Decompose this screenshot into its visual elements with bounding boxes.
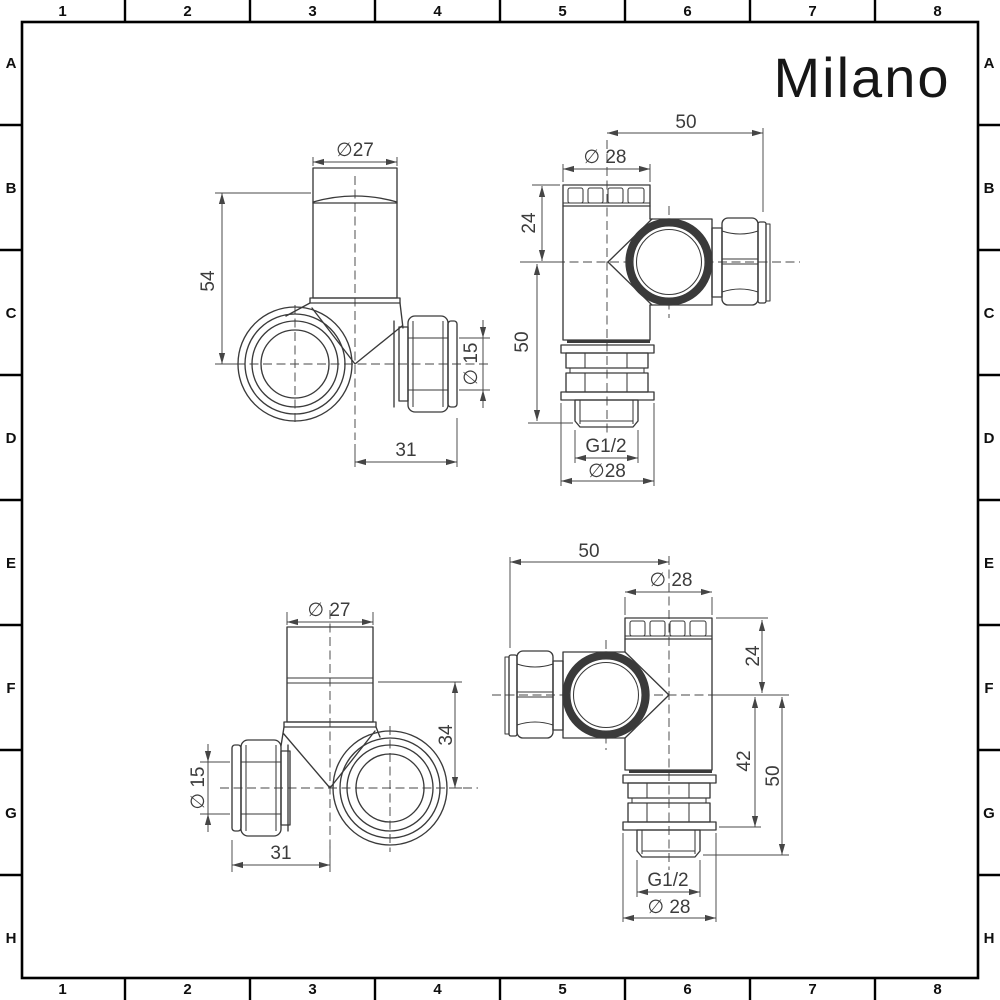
grid-label-col-bottom-6: 6 [683, 981, 691, 998]
grid-label-row-right-h: H [984, 930, 995, 947]
dim-label-outlet-length: 31 [395, 440, 416, 461]
grid-ticks [0, 0, 1000, 1000]
dim-label-body-height: 50 [763, 765, 784, 786]
grid-label-col-top-5: 5 [558, 3, 566, 20]
valve-outline [238, 168, 457, 421]
valve-outline [232, 627, 447, 845]
grid-label-row-left-f: F [6, 680, 15, 697]
dimensions [520, 128, 763, 486]
dim-label-valve-height: 42 [734, 750, 755, 771]
grid-label-col-bottom-3: 3 [308, 981, 316, 998]
dim-label-body-height: 34 [436, 724, 457, 746]
valve-outline [505, 618, 716, 857]
grid-label-col-top-3: 3 [308, 3, 316, 20]
dim-label-head-diameter: ∅27 [336, 140, 374, 161]
grid-label-row-left-g: G [5, 805, 17, 822]
valve-outline [561, 185, 770, 427]
dim-label-head-diameter: ∅ 27 [308, 600, 351, 621]
dim-label-base-diameter: ∅ 28 [648, 897, 691, 918]
grid-label-row-left-h: H [6, 930, 17, 947]
brand-logo: Milano [774, 46, 951, 109]
dim-label-height: 54 [198, 270, 219, 292]
grid-label-row-right-a: A [984, 55, 995, 72]
valve-view-bottom-left: ∅ 27 34 ∅ 15 31 [188, 600, 478, 872]
dim-label-pipe-diameter: ∅ 15 [461, 343, 482, 386]
dim-label-overall-depth: 50 [578, 541, 599, 562]
grid-label-col-top-4: 4 [433, 3, 442, 20]
dim-label-thread: G1/2 [585, 436, 626, 457]
centerlines [236, 176, 492, 440]
technical-drawing-sheet: 1 2 3 4 5 6 7 8 1 2 3 4 5 6 7 8 A B C D … [0, 0, 1000, 1000]
grid-label-row-left-b: B [6, 180, 17, 197]
grid-label-row-left-c: C [6, 305, 17, 322]
grid-label-col-top-8: 8 [933, 3, 941, 20]
dim-label-body-height: 50 [512, 331, 533, 352]
grid-label-row-right-c: C [984, 305, 995, 322]
grid-label-row-right-g: G [983, 805, 995, 822]
dim-label-outlet-length: 31 [270, 843, 291, 864]
dimensions [510, 557, 789, 922]
grid-label-row-left-d: D [6, 430, 17, 447]
dim-label-overall-depth: 50 [675, 112, 696, 133]
dim-label-thread: G1/2 [647, 870, 688, 891]
valve-view-top-left: ∅27 54 ∅ 15 31 [198, 140, 492, 467]
grid-label-row-right-b: B [984, 180, 995, 197]
dim-label-base-diameter: ∅28 [588, 461, 626, 482]
dim-label-head-diameter: ∅ 28 [650, 570, 693, 591]
grid-label-col-bottom-1: 1 [58, 981, 66, 998]
grid-label-col-bottom-4: 4 [433, 981, 442, 998]
drawing-canvas: 1 2 3 4 5 6 7 8 1 2 3 4 5 6 7 8 A B C D … [0, 0, 1000, 1000]
grid-label-row-right-d: D [984, 430, 995, 447]
grid-label-row-right-f: F [984, 680, 993, 697]
valve-view-top-right: 50 ∅ 28 24 50 G1/2 ∅28 [512, 112, 800, 486]
grid-label-row-left-e: E [6, 555, 16, 572]
grid-label-row-right-e: E [984, 555, 994, 572]
grid-label-col-bottom-5: 5 [558, 981, 566, 998]
dim-label-head-height: 24 [743, 645, 764, 667]
grid-label-col-bottom-8: 8 [933, 981, 941, 998]
grid-label-col-top-2: 2 [183, 3, 191, 20]
grid-label-col-bottom-7: 7 [808, 981, 816, 998]
drawing-border [22, 22, 978, 978]
dim-label-pipe-diameter: ∅ 15 [188, 767, 209, 810]
grid-label-col-bottom-2: 2 [183, 981, 191, 998]
valve-view-bottom-right: 50 ∅ 28 24 42 50 G1/2 ∅ 28 [492, 541, 789, 922]
grid-label-row-left-a: A [6, 55, 17, 72]
grid-label-col-top-1: 1 [58, 3, 66, 20]
dim-label-head-diameter: ∅ 28 [584, 147, 627, 168]
sheet-frame: 1 2 3 4 5 6 7 8 1 2 3 4 5 6 7 8 A B C D … [0, 0, 1000, 1000]
grid-label-col-top-7: 7 [808, 3, 816, 20]
grid-label-col-top-6: 6 [683, 3, 691, 20]
dim-label-head-height: 24 [519, 212, 540, 234]
